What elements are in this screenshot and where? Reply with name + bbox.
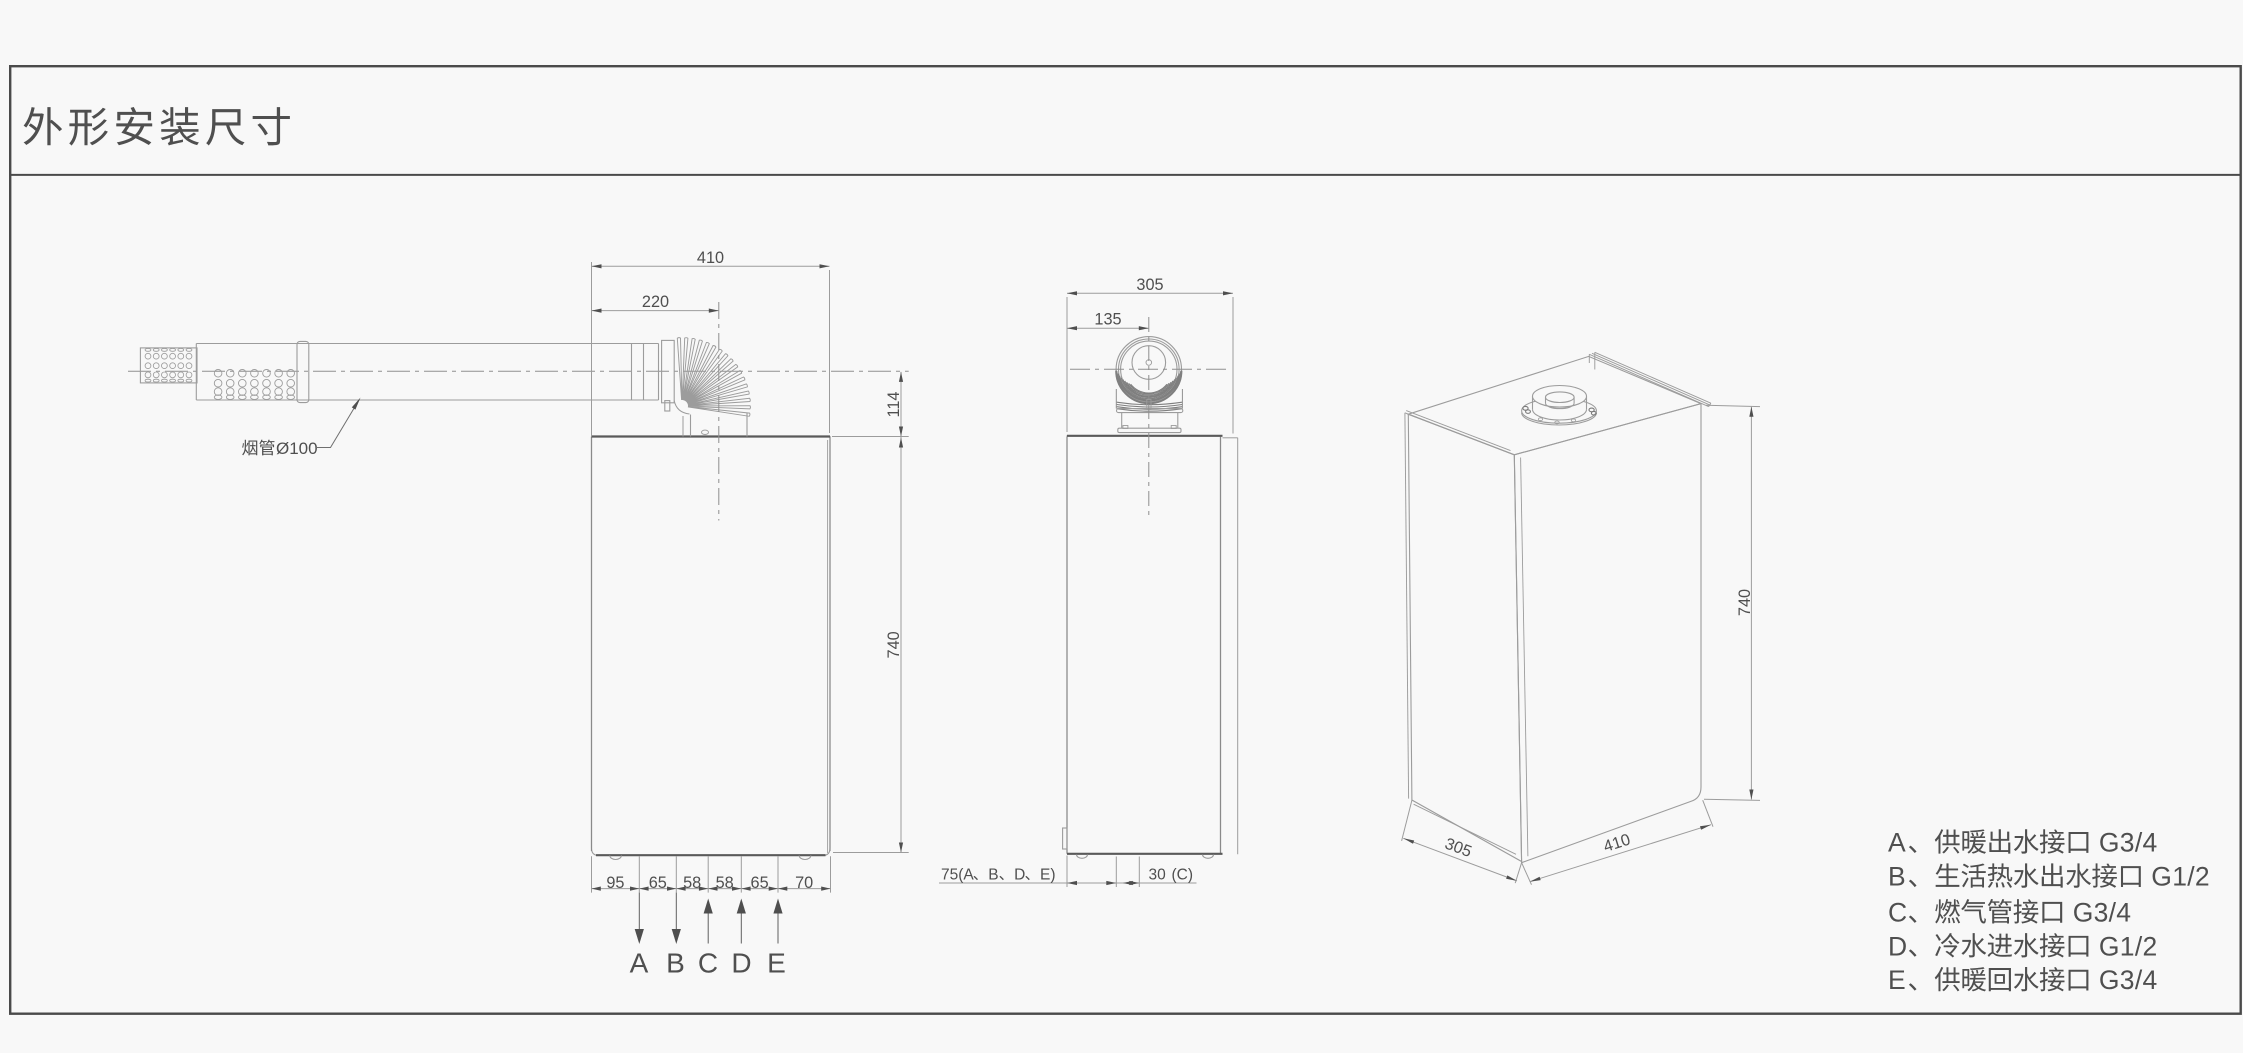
svg-text:58: 58 — [716, 874, 734, 892]
svg-text:B: B — [988, 866, 998, 883]
svg-text:E: E — [1888, 965, 1906, 995]
svg-text:E): E) — [1040, 866, 1056, 883]
svg-text:740: 740 — [885, 631, 903, 658]
svg-text:G3/4: G3/4 — [2099, 828, 2158, 858]
svg-text:C: C — [1888, 897, 1907, 927]
svg-text:D: D — [731, 948, 751, 979]
svg-text:D: D — [1888, 931, 1907, 961]
svg-text:114: 114 — [885, 392, 903, 418]
svg-text:G1/2: G1/2 — [2099, 931, 2158, 961]
svg-text:A: A — [630, 948, 649, 979]
svg-text:410: 410 — [697, 249, 724, 267]
svg-text:G1/2: G1/2 — [2151, 862, 2210, 892]
svg-text:E: E — [767, 948, 786, 979]
svg-text:740: 740 — [1736, 589, 1754, 616]
svg-text:220: 220 — [642, 293, 669, 311]
svg-text:65: 65 — [751, 874, 769, 892]
svg-text:65: 65 — [649, 874, 667, 892]
svg-text:305: 305 — [1136, 276, 1163, 294]
svg-text:95: 95 — [606, 874, 624, 892]
svg-text:C: C — [698, 948, 718, 979]
svg-text:Ø100: Ø100 — [276, 439, 318, 458]
svg-text:A: A — [1888, 828, 1906, 858]
svg-text:D: D — [1014, 866, 1025, 883]
svg-text:135: 135 — [1094, 311, 1121, 329]
svg-text:(C): (C) — [1172, 866, 1194, 883]
svg-text:70: 70 — [795, 874, 813, 892]
svg-text:B: B — [666, 948, 685, 979]
svg-text:G3/4: G3/4 — [2073, 897, 2132, 927]
svg-text:G3/4: G3/4 — [2099, 965, 2158, 995]
svg-text:58: 58 — [683, 874, 701, 892]
svg-text:B: B — [1888, 862, 1906, 892]
svg-text:30: 30 — [1149, 866, 1167, 883]
svg-text:75(A: 75(A — [941, 866, 974, 883]
